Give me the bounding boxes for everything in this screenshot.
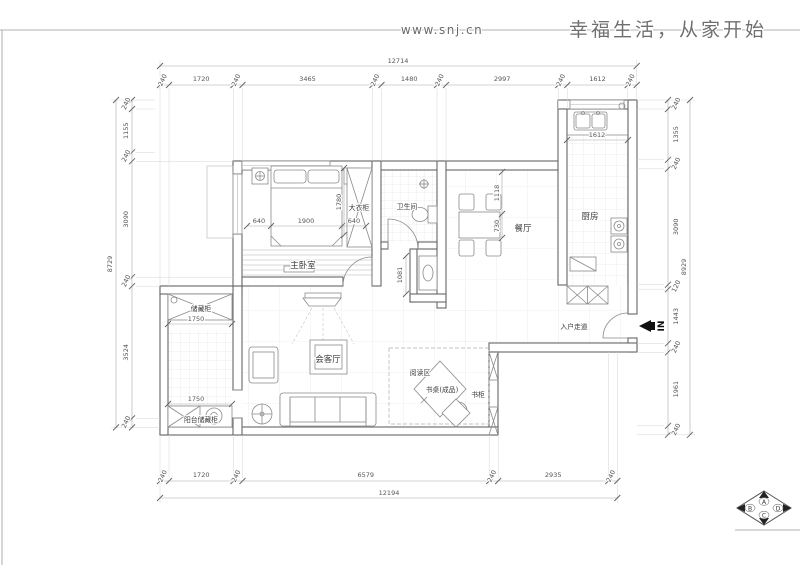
- dim: 240: [120, 274, 133, 289]
- dim: 1961: [672, 381, 680, 398]
- dim: 240: [120, 96, 133, 111]
- dim-left-total: 8729: [106, 256, 114, 273]
- label-bookcase: 书柜: [471, 390, 485, 399]
- label-balcony-storage: 阳台储藏柜: [184, 415, 218, 424]
- dim: 1443: [672, 308, 680, 325]
- label-entry: 入户走道: [560, 322, 587, 331]
- dim: 640: [253, 217, 265, 225]
- dim: 2997: [494, 75, 511, 83]
- label-desk: 书桌(成品): [426, 385, 459, 394]
- label-storage: 储藏柜: [191, 304, 212, 313]
- dim: 1750: [188, 315, 205, 323]
- dim: 1780: [335, 194, 343, 211]
- vanity: [419, 256, 437, 290]
- label-kitchen: 厨房: [581, 211, 598, 222]
- floor-plan-drawing: www.snj.cn 幸福生活，从家开始: [0, 0, 800, 565]
- dim: 1720: [193, 471, 210, 479]
- toilet-tank: [428, 206, 437, 223]
- dim: 730: [493, 220, 501, 232]
- armchair: [249, 347, 278, 383]
- entrance-in-label: IN: [657, 321, 667, 332]
- label-wardrobe: 大衣柜: [349, 203, 370, 212]
- dim: 240: [670, 340, 683, 355]
- dim: 640: [348, 217, 360, 225]
- dim: 1155: [122, 122, 130, 139]
- dim-top-total: 12714: [388, 57, 409, 65]
- dim: 2935: [545, 471, 562, 479]
- dim: 1612: [589, 75, 606, 83]
- dim: 240: [670, 156, 683, 171]
- dim: 1750: [188, 395, 205, 403]
- floor-fan: [252, 404, 272, 424]
- dim: 1900: [298, 217, 315, 225]
- dim-chain-right: 8929 240 1355 240 3090 120 1443 240 1961…: [637, 96, 695, 437]
- sofa: [280, 393, 376, 426]
- dim: 3090: [672, 219, 680, 236]
- label-bathroom: 卫生间: [397, 202, 418, 211]
- dim: 1118: [493, 185, 501, 202]
- dim: 3524: [122, 344, 130, 361]
- label-master-bedroom: 主卧室: [290, 260, 316, 271]
- floor-plan-page: www.snj.cn 幸福生活，从家开始: [0, 0, 800, 565]
- kitchen-sink: [574, 112, 607, 130]
- slogan-text: 幸福生活，从家开始: [569, 19, 767, 41]
- dim: 1720: [193, 75, 210, 83]
- entry-cabinets: [567, 286, 608, 304]
- dim: 240: [670, 96, 683, 111]
- dim-bottom-total: 12194: [379, 489, 400, 497]
- dim: 1081: [396, 267, 404, 284]
- bay-window-hatch: [207, 166, 233, 238]
- stove-burner: [611, 236, 627, 252]
- entrance-arrow-icon: [639, 320, 655, 332]
- stove-burner: [611, 218, 627, 234]
- label-living: 会客厅: [315, 354, 341, 365]
- compass-logo: A B D C: [737, 491, 791, 525]
- website-url: www.snj.cn: [401, 23, 483, 37]
- bedroom-door: [343, 257, 372, 286]
- compass-letter-b: B: [748, 506, 752, 513]
- dim: 240: [120, 149, 133, 164]
- dim: 1480: [401, 75, 418, 83]
- dim: 1612: [589, 131, 606, 139]
- compass-letter-c: C: [762, 513, 766, 520]
- label-dining: 餐厅: [514, 224, 532, 234]
- bed: [271, 166, 342, 246]
- dim: 1355: [672, 126, 680, 143]
- compass-letter-d: D: [776, 506, 781, 513]
- dim: 120: [670, 279, 683, 294]
- dim: 3090: [122, 211, 130, 228]
- dim: 6579: [358, 471, 375, 479]
- label-reading: 阅读区: [410, 368, 431, 377]
- dim-right-total: 8929: [680, 259, 688, 276]
- dim: 3465: [299, 75, 316, 83]
